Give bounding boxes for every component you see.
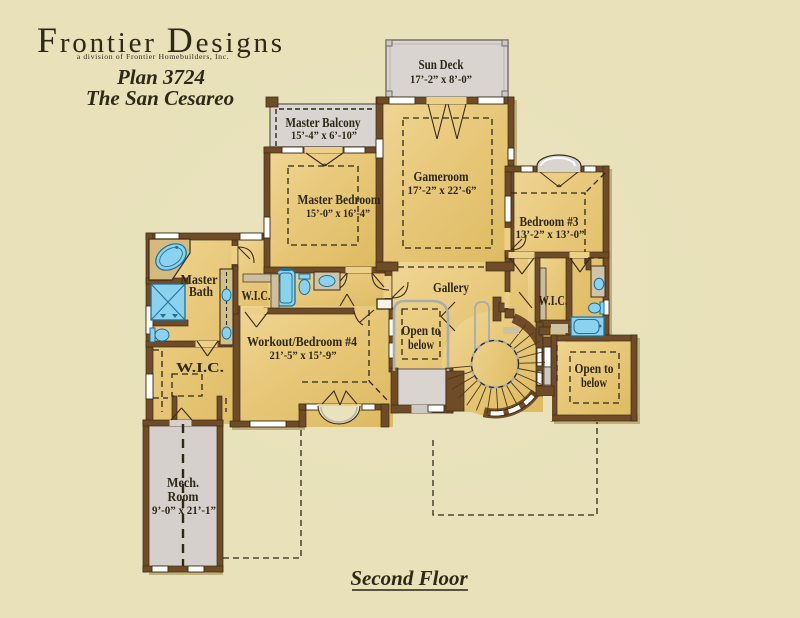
svg-text:15’-4” x 6’-10”: 15’-4” x 6’-10” [291,130,357,142]
svg-text:below: below [408,337,434,352]
svg-text:Master Balcony: Master Balcony [286,115,361,130]
svg-text:13’-2” x 13’-0”: 13’-2” x 13’-0” [516,229,585,241]
svg-text:17’-2” x 22’-6”: 17’-2” x 22’-6” [408,185,477,197]
svg-text:Open to: Open to [575,361,614,376]
svg-text:Bath: Bath [189,284,213,299]
svg-text:15’-0” x 16’-4”: 15’-0” x 16’-4” [306,208,370,220]
svg-text:Bedroom #3: Bedroom #3 [520,214,579,229]
svg-text:17’-2” x 8’-0”: 17’-2” x 8’-0” [410,74,472,86]
svg-text:Gallery: Gallery [433,280,469,295]
svg-text:below: below [581,375,607,390]
svg-text:Open to: Open to [402,323,441,338]
svg-text:Second Floor: Second Floor [350,566,468,590]
svg-text:Master Bedroom: Master Bedroom [298,192,382,207]
svg-text:W.I.C.: W.I.C. [539,293,568,308]
svg-text:W.I.C.: W.I.C. [242,288,271,303]
svg-text:W.I.C.: W.I.C. [176,360,224,375]
svg-text:a division of Frontier Homebui: a division of Frontier Homebuilders, Inc… [77,52,230,61]
svg-text:21’-5” x 15’-9”: 21’-5” x 15’-9” [270,350,337,362]
svg-text:Gameroom: Gameroom [414,169,470,184]
svg-text:Workout/Bedroom #4: Workout/Bedroom #4 [247,334,357,349]
svg-text:The San Cesareo: The San Cesareo [86,86,234,110]
svg-text:Sun Deck: Sun Deck [419,57,464,72]
